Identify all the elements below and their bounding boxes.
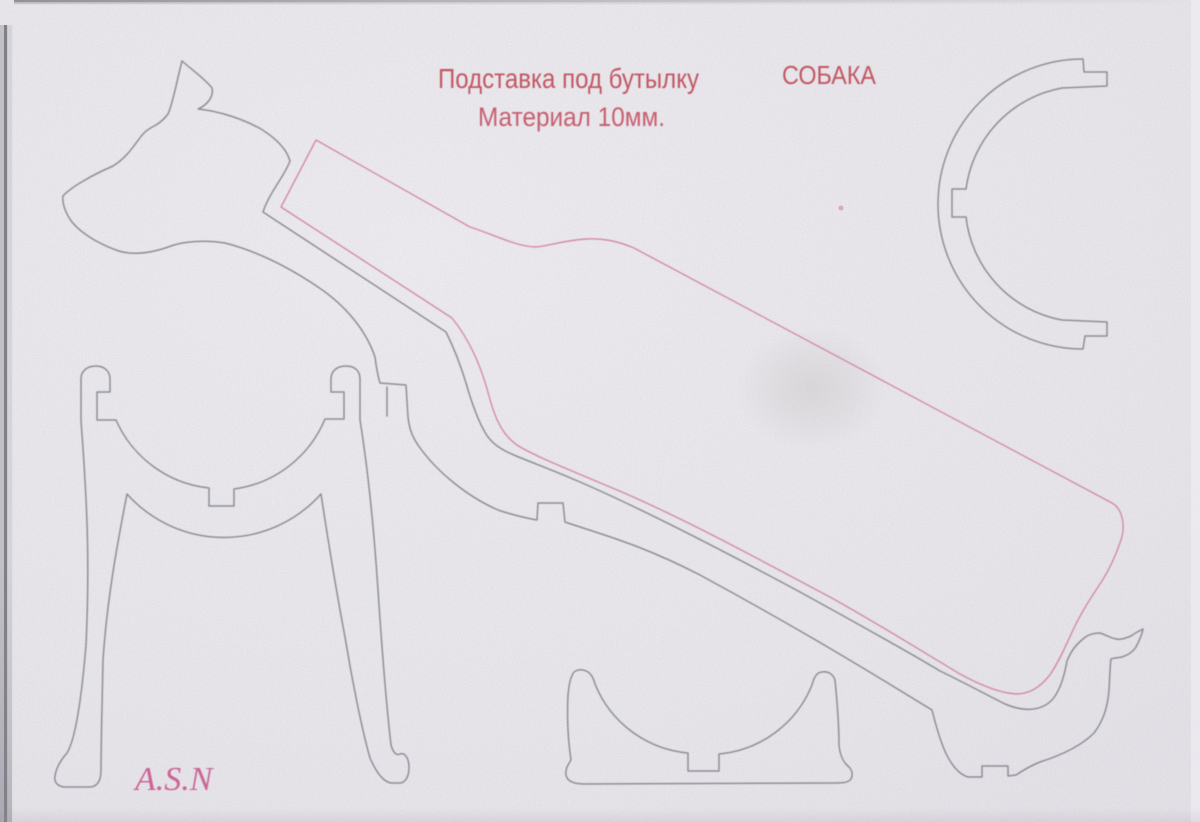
svg-text:Подставка под бутылку: Подставка под бутылку bbox=[438, 63, 699, 94]
svg-text:A.S.N: A.S.N bbox=[133, 761, 215, 798]
svg-text:СОБАКА: СОБАКА bbox=[782, 62, 876, 90]
svg-text:Материал 10мм.: Материал 10мм. bbox=[478, 102, 665, 132]
